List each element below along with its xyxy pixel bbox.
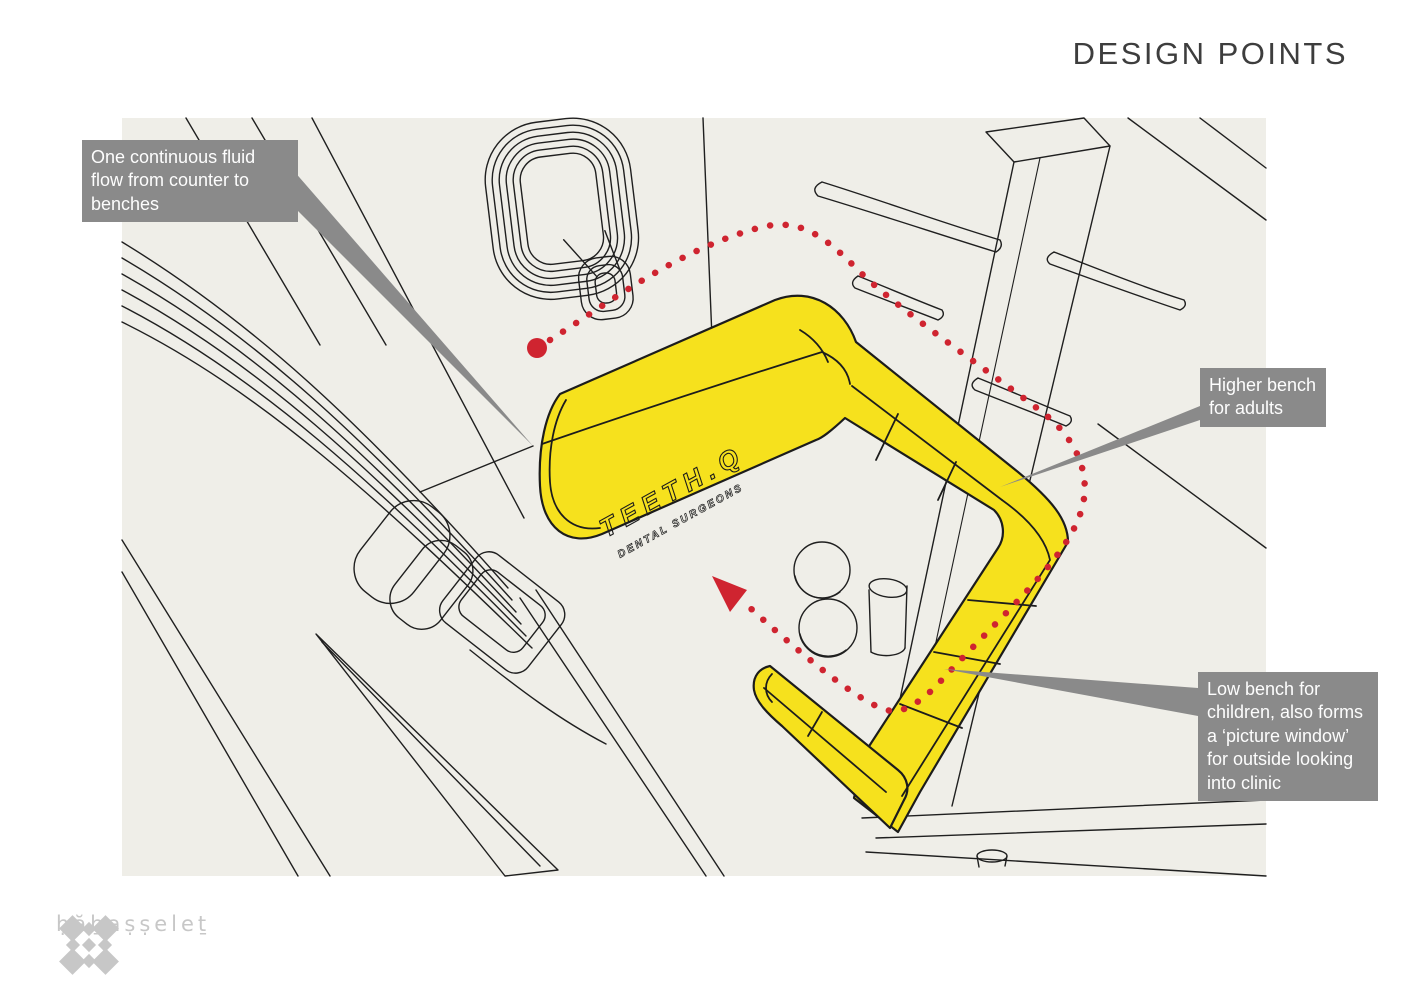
callout-line: children, also forms bbox=[1207, 701, 1369, 724]
slide: TEETH.Q DENTAL SURGEONS bbox=[0, 0, 1404, 993]
callout-line: flow from counter to bbox=[91, 169, 289, 192]
callout-line: One continuous fluid bbox=[91, 146, 289, 169]
callout-line: Higher bench bbox=[1209, 374, 1317, 397]
sketch-paper bbox=[122, 118, 1266, 876]
callout-flow: One continuous fluid flow from counter t… bbox=[82, 140, 298, 222]
logo-diamond-icon bbox=[56, 912, 122, 978]
brand-logo: ḥăḇaṣṣeleṯ bbox=[56, 912, 210, 936]
callout-line: benches bbox=[91, 193, 289, 216]
callout-higher-bench: Higher bench for adults bbox=[1200, 368, 1326, 427]
callout-line: Low bench for bbox=[1207, 678, 1369, 701]
callout-line: for outside looking bbox=[1207, 748, 1369, 771]
callout-line: into clinic bbox=[1207, 772, 1369, 795]
path-start-dot bbox=[527, 338, 547, 358]
callout-line: a ‘picture window’ bbox=[1207, 725, 1369, 748]
callout-low-bench: Low bench for children, also forms a ‘pi… bbox=[1198, 672, 1378, 801]
callout-line: for adults bbox=[1209, 397, 1317, 420]
page-title: DESIGN POINTS bbox=[1073, 36, 1348, 72]
